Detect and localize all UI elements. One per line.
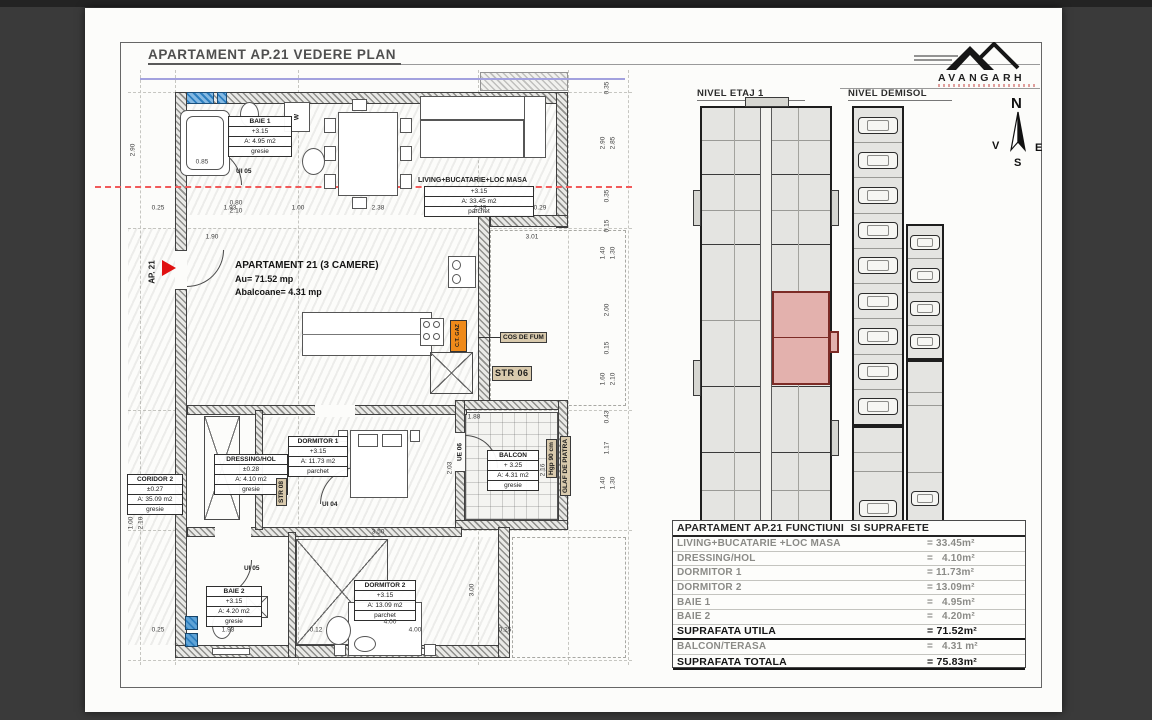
parking-stall [908, 226, 942, 259]
dimension-label: 0.25 [152, 205, 165, 212]
row-label: LIVING+BUCATARIE +LOC MASA [677, 538, 841, 549]
dimension-label: 2.10 [138, 517, 145, 530]
room-label-baie2: BAIE 2 +3.15 A: 4.20 m2 gresie [206, 586, 262, 627]
sink [326, 616, 351, 645]
car-icon [858, 117, 898, 134]
dimension-label: 1.40 [600, 247, 607, 260]
neighbor-zone [512, 537, 626, 658]
door-code: UI 05 [244, 565, 260, 572]
mini-balcony [831, 190, 839, 226]
row-value: = 13.09m² [927, 582, 1021, 593]
room-area: A: 4.31 m2 [488, 471, 538, 481]
grid-line [628, 70, 629, 665]
door-code: UI 04 [322, 501, 338, 508]
dimension-label: 1.93 [222, 627, 235, 634]
door-code: UI 05 [236, 168, 252, 175]
row-label: BALCON/TERASA [677, 641, 766, 652]
room-level: + 3.25 [488, 461, 538, 471]
car-icon [858, 363, 898, 380]
logo-tagline [938, 84, 1038, 87]
wall-segment [478, 215, 490, 410]
hob-burner [433, 321, 440, 328]
parking-stall [854, 108, 902, 143]
dimension-label: 1.17 [604, 442, 611, 455]
highlighted-balcony [829, 331, 839, 353]
car-icon [859, 500, 897, 517]
shaft-blue [185, 616, 198, 630]
pillow [354, 636, 376, 652]
row-value: = 33.45m² [927, 538, 1021, 549]
row-value: = 4.31 m² [927, 641, 1021, 652]
room-name: BAIE 2 [207, 587, 261, 597]
chair [324, 174, 336, 189]
wall-segment [288, 532, 296, 658]
mini-entrance [745, 97, 789, 107]
shaft-blue [185, 633, 198, 647]
room-label-baie1: BAIE 1 +3.15 A: 4.95 m2 gresie [228, 116, 292, 157]
car-icon [910, 268, 940, 283]
entrance-arrow-icon [162, 260, 176, 276]
pillow [358, 434, 378, 447]
compass-e: E [1035, 142, 1042, 154]
car-icon [910, 301, 940, 316]
dimension-label: 3.00 [469, 584, 476, 597]
car-icon [858, 222, 898, 239]
dimension-label: 2.00 [604, 304, 611, 317]
demisol-rooms [906, 360, 944, 532]
dining-table [338, 112, 398, 196]
mini-corridor [760, 108, 772, 520]
parking-stall [854, 178, 902, 213]
room-level: +3.15 [355, 591, 415, 601]
dimension-label: 2.10 [610, 373, 617, 386]
neighbor-terrace-hatch [480, 72, 568, 91]
parking-stall [854, 143, 902, 178]
ct-gaz-box: C.T. GAZ [450, 320, 467, 352]
door-opening [215, 527, 251, 537]
chair [400, 146, 412, 161]
logo-rule [840, 88, 1040, 89]
door-code: UE 06 [457, 443, 464, 461]
wall-segment [498, 527, 510, 658]
row-value: = 71.52m² [927, 625, 1021, 637]
parking-stall [854, 390, 902, 424]
dimension-label: 2.90 [600, 137, 607, 150]
hob-burner [423, 333, 430, 340]
dimension-label: 1.90 [206, 234, 219, 241]
mini-balcony [693, 190, 701, 226]
window [212, 648, 250, 655]
dimension-label: 0.29 [534, 205, 547, 212]
parking-stall [854, 214, 902, 249]
dimension-label: 2.49 [474, 205, 487, 212]
parking-stall [908, 293, 942, 326]
room-area: A: 4.95 m2 [229, 137, 291, 147]
dimension-label: 3.01 [526, 234, 539, 241]
mini-wall [908, 472, 942, 473]
sofa-seat [420, 120, 524, 158]
room-label-balcon: BALCON + 3.25 A: 4.31 m2 gresie [487, 450, 539, 491]
room-finish: gresie [488, 481, 538, 490]
parking-stall [908, 326, 942, 358]
room-area: A: 11.73 m2 [289, 457, 347, 467]
parking-stall [854, 284, 902, 319]
logo-mountains-icon [912, 42, 1040, 72]
wall-segment [556, 92, 568, 228]
dimension-label: 2.90 [130, 144, 137, 157]
row-value: = 4.20m² [927, 611, 1021, 622]
glaf-label: GLAF DE PIATRA [560, 436, 571, 496]
surfaces-table-title: APARTAMENT AP.21 FUNCTIUNI SI SUPRAFETE [673, 521, 1025, 537]
balcony-wall [455, 520, 568, 530]
dimension-label: 0.25 [152, 627, 165, 634]
apartment-marker: AP. 21 [148, 260, 157, 283]
dimension-label: 2.03 [447, 462, 454, 475]
room-name: DRESSING/HOL [215, 455, 287, 465]
row-label: DRESSING/HOL [677, 553, 756, 564]
car-icon [858, 152, 898, 169]
pillow [382, 434, 402, 447]
chimney-label: COS DE FUM [500, 332, 547, 343]
mini-wall [908, 392, 942, 393]
mini-balcony [693, 360, 701, 396]
washer-label: W [294, 114, 301, 120]
dimension-label: 1.30 [610, 247, 617, 260]
row-label: BAIE 2 [677, 611, 710, 622]
room-area: A: 13.09 m2 [355, 601, 415, 611]
chair [324, 146, 336, 161]
mini-wall [908, 405, 942, 406]
nightstand [334, 644, 346, 656]
sink-bowl [452, 274, 461, 284]
compass-v: V [992, 140, 1000, 152]
dimension-label: 0.35 [604, 82, 611, 95]
row-label: BAIE 1 [677, 597, 710, 608]
dimension-label: 0.80 [230, 200, 243, 207]
door-opening [315, 405, 355, 415]
room-area: A: 35.09 m2 [128, 495, 182, 505]
compass-n: N [1011, 95, 1022, 112]
room-name: BALCON [488, 451, 538, 461]
row-value: = 4.95m² [927, 597, 1021, 608]
dimension-label: 0.25 [499, 627, 512, 634]
room-level: +3.15 [289, 447, 347, 457]
dimension-label: 1.30 [610, 477, 617, 490]
hob-burner [423, 321, 430, 328]
dimension-label: 1.40 [600, 477, 607, 490]
drawing-sheet-viewport: APARTAMENT AP.21 VEDERE PLAN [0, 0, 1152, 720]
surfaces-table: APARTAMENT AP.21 FUNCTIUNI SI SUPRAFETE … [672, 520, 1026, 668]
room-finish: gresie [207, 617, 261, 626]
row-value: = 4.10m² [927, 553, 1021, 564]
room-level: +3.15 [229, 127, 291, 137]
room-level: ±0.28 [215, 465, 287, 475]
table-row: BAIE 1 = 4.95m² [673, 595, 1025, 610]
dimension-label: 2.85 [610, 137, 617, 150]
row-label: DORMITOR 1 [677, 567, 742, 578]
car-icon [858, 257, 898, 274]
dimension-label: 0.12 [310, 627, 323, 634]
title-underline [148, 63, 401, 65]
chair [352, 99, 367, 111]
room-finish: gresie [229, 147, 291, 156]
dimension-label: 0.85 [196, 159, 209, 166]
row-label: SUPRAFATA UTILA [677, 625, 776, 637]
dimension-label: 0.15 [604, 342, 611, 355]
room-name: DORMITOR 2 [355, 581, 415, 591]
wall-segment [175, 92, 187, 658]
dimension-label: 2.16 [540, 464, 547, 477]
highlighted-apartment [772, 291, 830, 385]
balcony-wall [455, 400, 568, 410]
table-row: DORMITOR 1 = 11.73m² [673, 566, 1025, 581]
chair [400, 118, 412, 133]
chair [352, 197, 367, 209]
chair [400, 174, 412, 189]
dimension-label: 4.00 [409, 627, 422, 634]
shaft-box [430, 352, 473, 394]
room-level: +3.15 [425, 187, 533, 197]
table-row: BAIE 2 = 4.20m² [673, 610, 1025, 625]
hob-burner [433, 333, 440, 340]
room-label-coridor2: CORIDOR 2 ±0.27 A: 35.09 m2 gresie [127, 474, 183, 515]
dimension-label: 2.38 [372, 205, 385, 212]
parking-stall [854, 249, 902, 284]
room-level: +3.15 [207, 597, 261, 607]
mini-wall [854, 452, 902, 453]
mini-wall [774, 337, 828, 338]
car-icon [858, 187, 898, 204]
demisol-garage [852, 106, 904, 426]
page-title: APARTAMENT AP.21 VEDERE PLAN [148, 47, 396, 62]
door-opening [175, 250, 187, 290]
car-icon [858, 398, 898, 415]
nightstand [424, 644, 436, 656]
car-icon [911, 491, 939, 506]
dimension-label: 0.35 [604, 190, 611, 203]
sink-bowl [452, 260, 461, 270]
room-label-dormitor2: DORMITOR 2 +3.15 A: 13.09 m2 parchet [354, 580, 416, 621]
dimension-label: 0.15 [604, 220, 611, 233]
table-row: LIVING+BUCATARIE +LOC MASA = 33.45m² [673, 537, 1025, 552]
room-name: BAIE 1 [229, 117, 291, 127]
room-name: DORMITOR 1 [289, 437, 347, 447]
window [217, 92, 227, 104]
room-name: CORIDOR 2 [128, 475, 182, 485]
parking-stall [908, 259, 942, 292]
utility-line [140, 78, 625, 80]
table-row: DRESSING/HOL = 4.10m² [673, 552, 1025, 567]
apartment-abalcoane: Abalcoane= 4.31 mp [235, 287, 322, 297]
apartment-au: Au= 71.52 mp [235, 274, 293, 284]
row-label: SUPRAFATA TOTALA [677, 656, 787, 668]
dimension-label: 4.00 [384, 619, 397, 626]
car-icon [858, 293, 898, 310]
dimension-label: 1.88 [468, 414, 481, 421]
hgp-label: Hgp 90 cm [546, 439, 557, 478]
row-value: = 11.73m² [927, 567, 1021, 578]
grid-line [128, 660, 632, 661]
mini-balcony [831, 420, 839, 456]
logo-name: AVANGARH [938, 72, 1025, 84]
sofa-arm [524, 96, 546, 158]
dimension-label: 1.60 [600, 373, 607, 386]
room-area: A: 4.20 m2 [207, 607, 261, 617]
chair [324, 118, 336, 133]
car-icon [910, 334, 940, 349]
demisol-rooms [852, 426, 904, 532]
compass-rose-icon: N V E S [990, 92, 1046, 168]
car-icon [910, 235, 940, 250]
room-finish: parchet [289, 467, 347, 476]
apartment-title: APARTAMENT 21 (3 CAMERE) [235, 260, 379, 271]
row-label: DORMITOR 2 [677, 582, 742, 593]
table-row: BALCON/TERASA = 4.31 m² [673, 640, 1025, 655]
dimension-label: 2.10 [230, 208, 243, 215]
counter-line [302, 334, 432, 335]
leader-line [478, 337, 500, 338]
car-icon [858, 328, 898, 345]
demisol-garage [906, 224, 944, 360]
dimension-label: 0.43 [604, 411, 611, 424]
parking-stall [854, 355, 902, 390]
mini-wall [854, 471, 902, 472]
top-dark-bar [0, 0, 1152, 7]
compass-s: S [1014, 157, 1021, 168]
room-level: ±0.27 [128, 485, 182, 495]
dimension-label: 3.50 [372, 529, 385, 536]
nightstand [410, 430, 420, 442]
table-row-total: SUPRAFATA UTILA = 71.52m² [673, 625, 1025, 641]
room-finish: gresie [128, 505, 182, 514]
str08-label: STR 08 [276, 478, 287, 506]
room-label-dormitor1: DORMITOR 1 +3.15 A: 11.73 m2 parchet [288, 436, 348, 477]
row-value: = 75.83m² [927, 656, 1021, 668]
sink [302, 148, 325, 175]
table-row-total: SUPRAFATA TOTALA = 75.83m² [673, 655, 1025, 671]
str06-label: STR 06 [492, 366, 532, 381]
room-name: LIVING+BUCATARIE+LOC MASA [418, 177, 527, 184]
demisol-label: NIVEL DEMISOL [848, 88, 952, 101]
corridor-floor [128, 228, 175, 645]
dimension-label: 1.00 [128, 517, 135, 530]
dimension-label: 1.00 [292, 205, 305, 212]
parking-stall [854, 319, 902, 354]
table-row: DORMITOR 2 = 13.09m² [673, 581, 1025, 596]
room-label-living: +3.15 A: 33.45 m2 parchet [424, 186, 534, 217]
mini-wall [734, 108, 735, 520]
